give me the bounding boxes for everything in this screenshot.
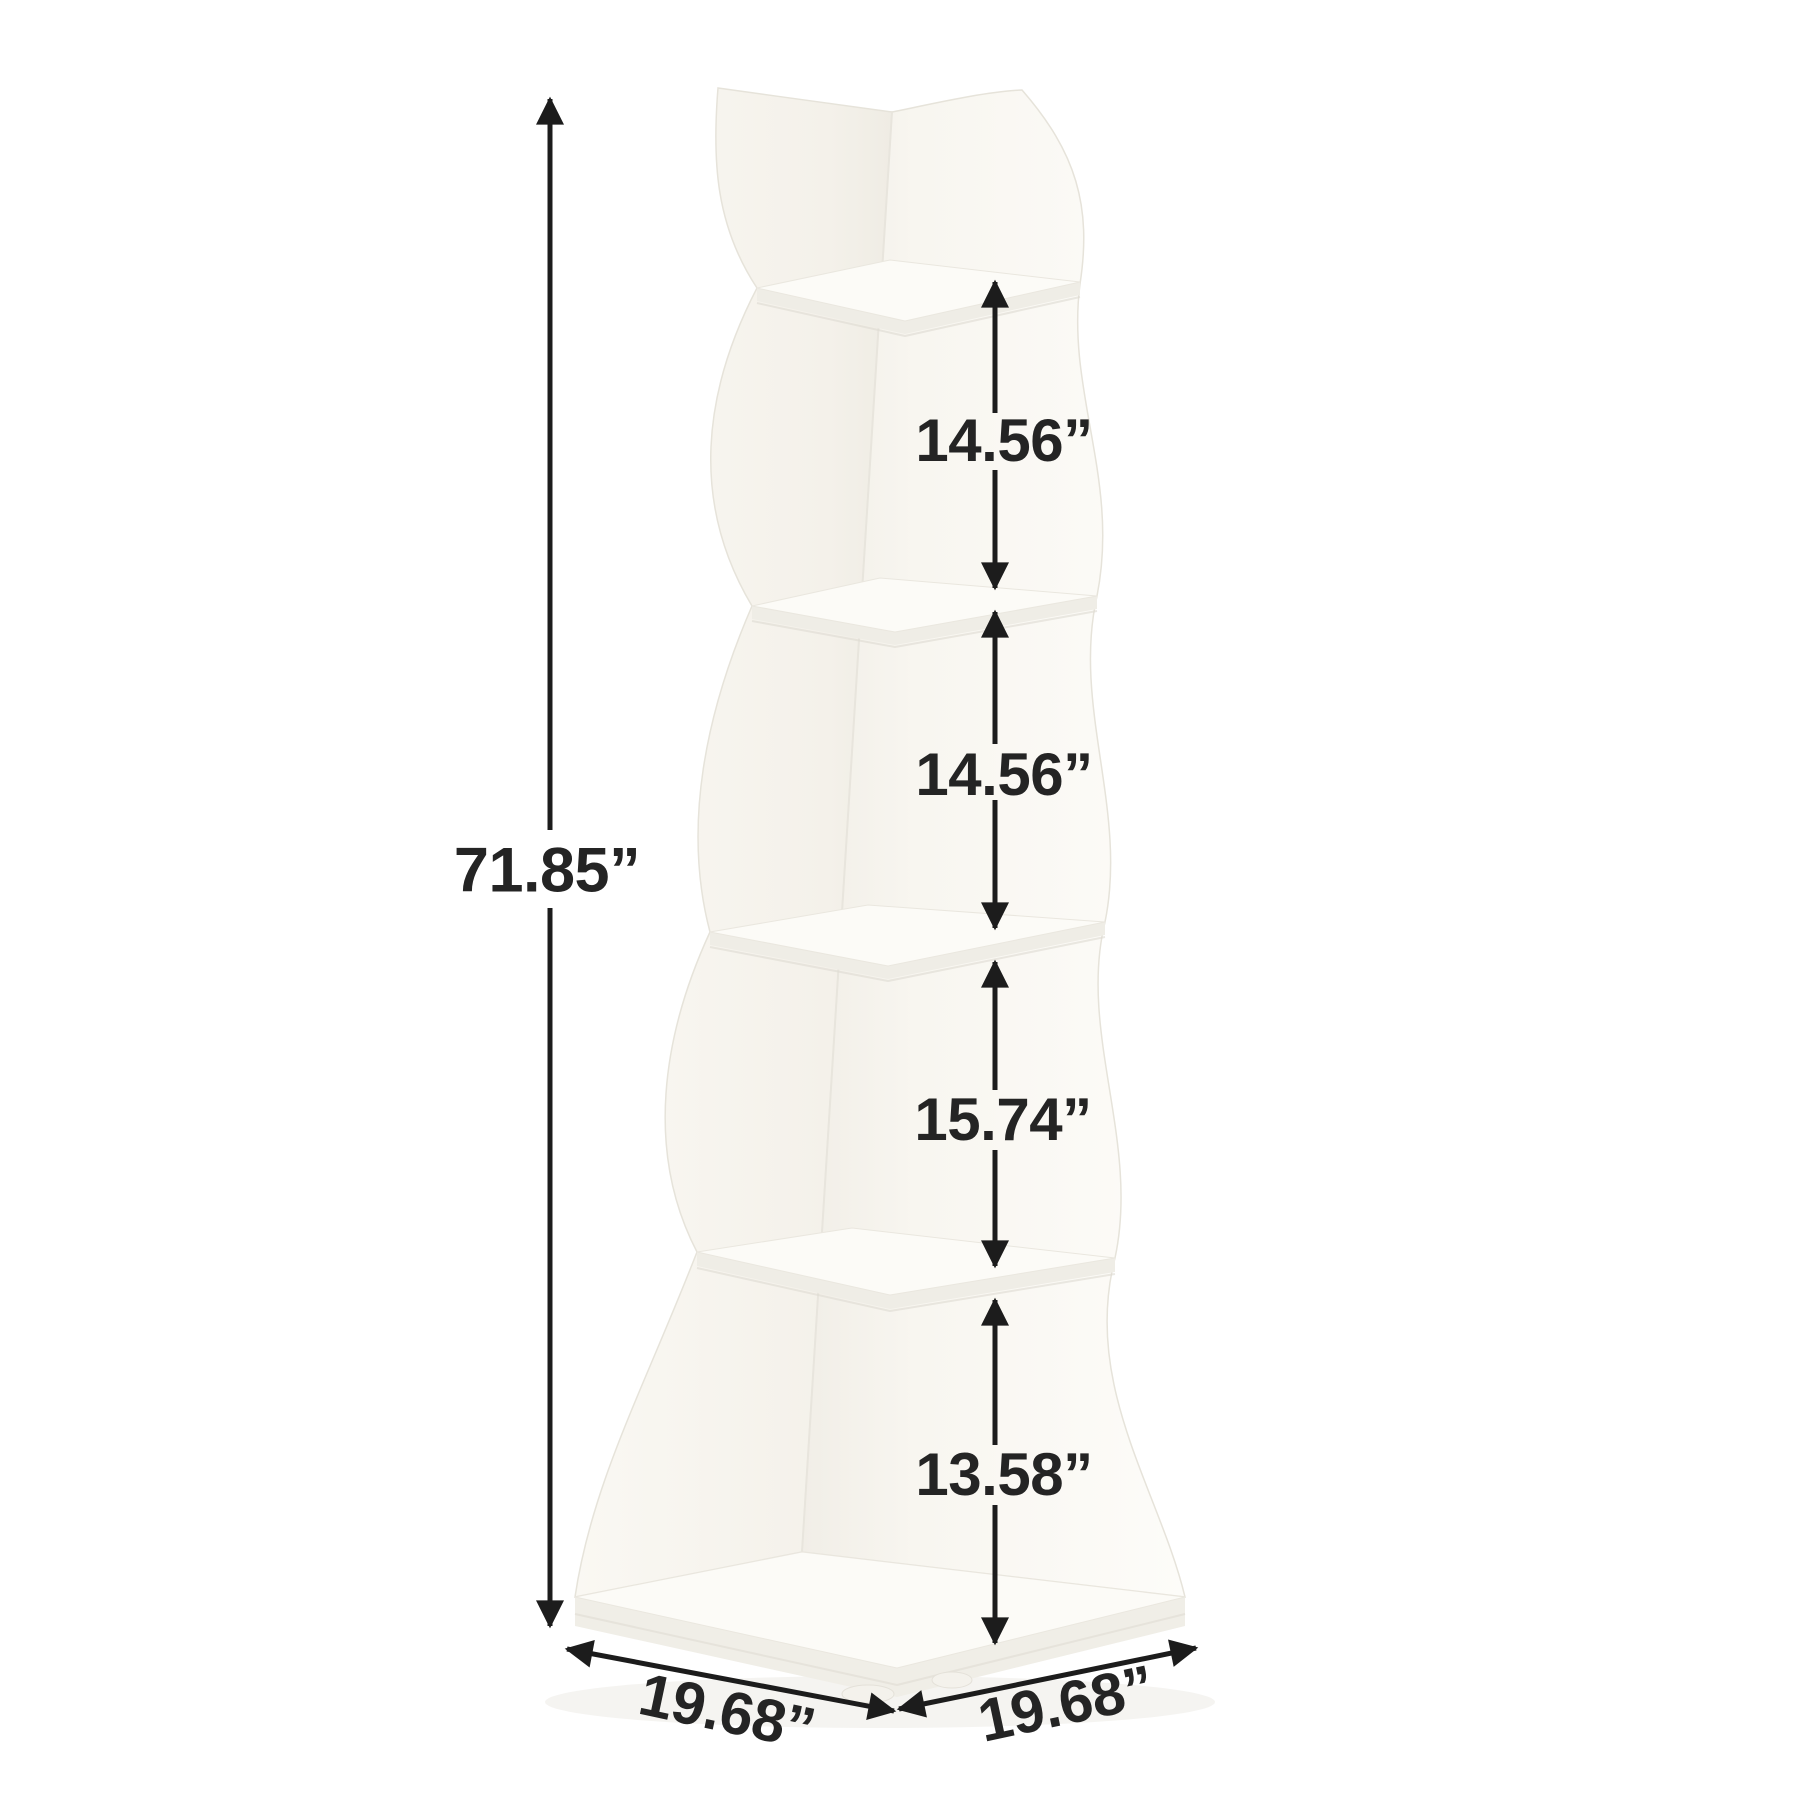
gap-2-dimension-label: 14.56” — [915, 745, 1092, 805]
height-dimension-label: 71.85” — [454, 840, 640, 903]
base-foot — [932, 1672, 972, 1688]
gap-1-dimension-label: 14.56” — [915, 411, 1092, 471]
gap-3-dimension-label: 15.74” — [914, 1090, 1091, 1150]
dimension-diagram: 71.85” 14.56” 14.56” 15.74” 13.58” 19.68… — [0, 0, 1800, 1800]
corner-shelf-illustration — [0, 0, 1800, 1800]
gap-4-dimension-label: 13.58” — [915, 1445, 1092, 1505]
